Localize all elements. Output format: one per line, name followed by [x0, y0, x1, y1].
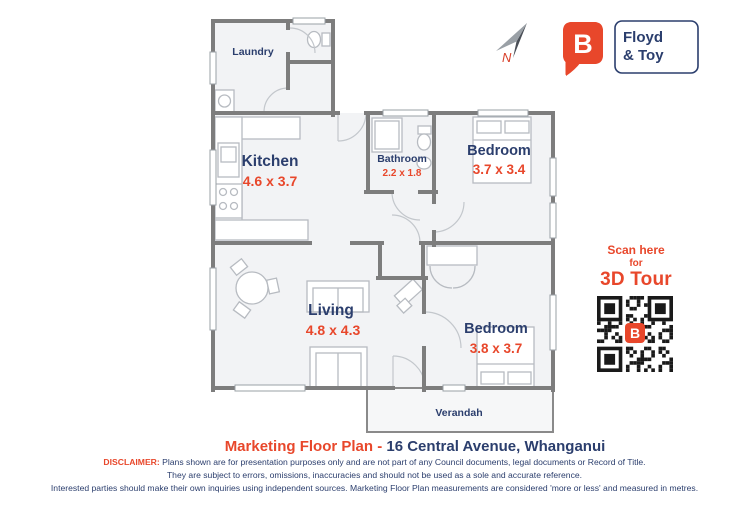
disclaimer-line-1: DISCLAIMER: Plans shown are for presenta…: [20, 456, 729, 469]
logo-letter: B: [573, 29, 593, 59]
verandah-label: Verandah: [435, 407, 482, 419]
disclaimer-text-1: Plans shown are for presentation purpose…: [162, 457, 645, 467]
bedroom2-label: Bedroom: [464, 321, 528, 337]
bathroom-dims: 2.2 x 1.8: [383, 168, 422, 179]
kitchen-dims: 4.6 x 3.7: [243, 173, 298, 189]
bedroom2-dims: 3.8 x 3.7: [470, 341, 523, 356]
scan-for-text: for: [586, 258, 686, 270]
living-label: Living: [308, 302, 354, 319]
north-arrow-icon: N: [496, 23, 527, 65]
laundry-tub-icon: [215, 90, 234, 112]
brand-name-line1: Floyd: [623, 29, 663, 46]
svg-text:B: B: [630, 325, 640, 341]
kitchen-label: Kitchen: [242, 153, 299, 170]
footer-title-address: 16 Central Avenue, Whanganui: [386, 438, 605, 455]
laundry-label: Laundry: [232, 46, 274, 58]
disclaimer-label: DISCLAIMER:: [103, 457, 159, 467]
bedroom1-label: Bedroom: [467, 143, 531, 159]
living-dims: 4.8 x 4.3: [306, 322, 361, 338]
bathroom-label: Bathroom: [377, 153, 427, 165]
brand-logo: B Floyd & Toy: [563, 21, 698, 76]
disclaimer-line-3: Interested parties should make their own…: [20, 482, 729, 495]
scan-text-block: Scan here for 3D Tour: [586, 244, 686, 291]
bedroom1-dims: 3.7 x 3.4: [473, 162, 526, 177]
footer-title-plan: Marketing Floor Plan -: [225, 438, 383, 455]
qr-code-icon: B: [597, 296, 673, 372]
scan-3d-tour-text: 3D Tour: [586, 269, 686, 291]
disclaimer-block: DISCLAIMER: Plans shown are for presenta…: [20, 456, 729, 495]
sofa-small-icon: [310, 347, 367, 387]
footer-title: Marketing Floor Plan - 16 Central Avenue…: [45, 438, 749, 455]
brand-name-line2: & Toy: [623, 47, 664, 64]
north-label: N: [502, 50, 512, 65]
disclaimer-line-2: They are subject to errors, omissions, i…: [20, 469, 729, 482]
floor-plan-page: Laundry Kitchen 4.6 x 3.7 Bathroom 2.2 x…: [0, 0, 749, 530]
scan-here-text: Scan here: [586, 244, 686, 258]
